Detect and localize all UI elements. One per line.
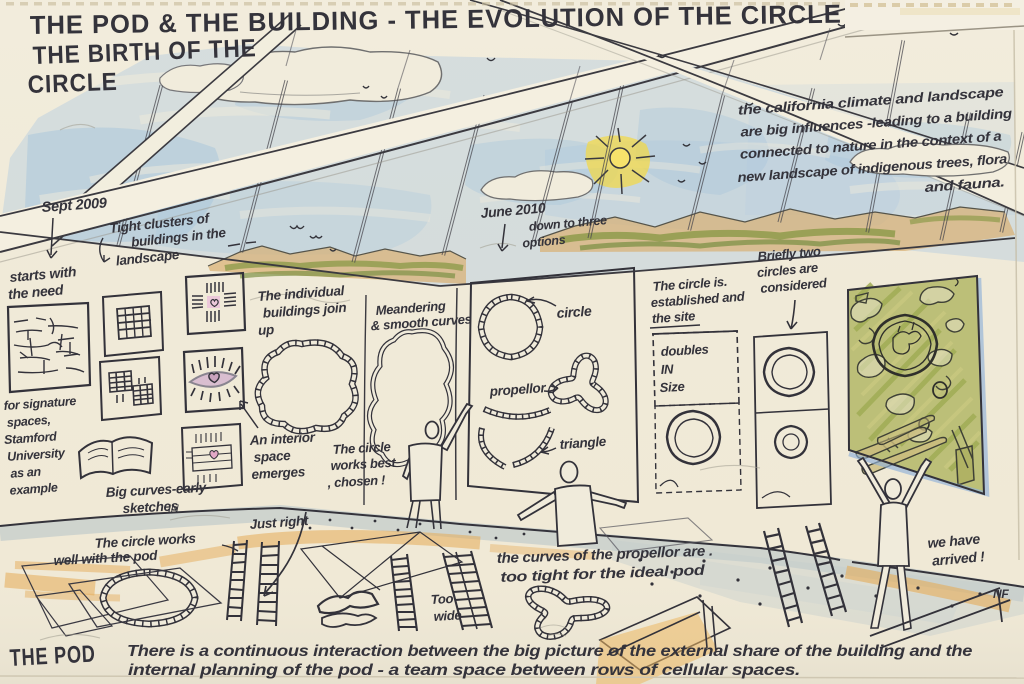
svg-text:internal planning of the pod -: internal planning of the pod - a team sp… <box>128 662 800 679</box>
svg-text:There is a continuous interact: There is a continuous interaction betwee… <box>127 643 972 660</box>
svg-text:IN: IN <box>168 503 179 515</box>
svg-text:circle: circle <box>556 303 592 321</box>
svg-text:doubles: doubles <box>660 342 709 359</box>
svg-text:wide: wide <box>433 607 462 623</box>
svg-text:space: space <box>253 448 291 465</box>
svg-text:The circle: The circle <box>332 439 390 457</box>
svg-text:emerges: emerges <box>251 464 306 482</box>
svg-text:Too: Too <box>430 591 454 607</box>
svg-text:IN: IN <box>660 361 674 377</box>
svg-text:up: up <box>258 322 275 338</box>
svg-text:NF: NF <box>993 587 1009 601</box>
svg-text:, chosen !: , chosen ! <box>326 472 386 490</box>
svg-text:CIRCLE: CIRCLE <box>27 68 118 99</box>
svg-text:Size: Size <box>659 379 685 395</box>
svg-text:the site: the site <box>651 308 695 326</box>
svg-text:as an: as an <box>10 465 42 481</box>
svg-text:THE POD: THE POD <box>9 641 96 672</box>
